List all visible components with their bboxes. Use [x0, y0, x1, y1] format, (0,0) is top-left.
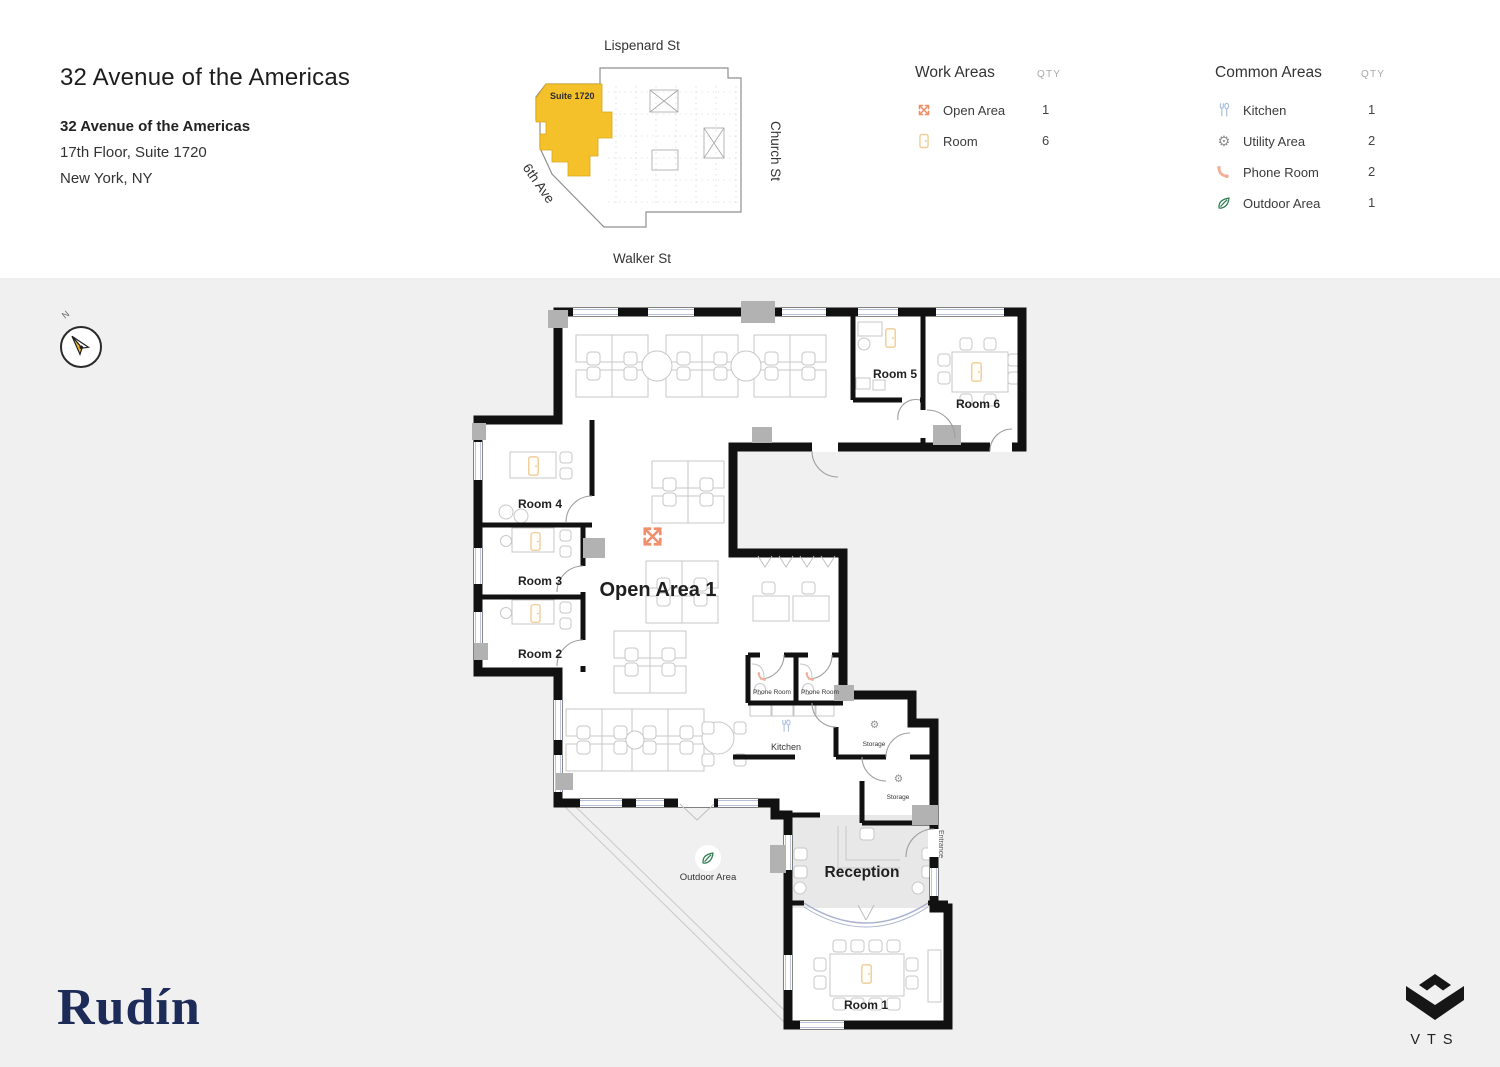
legend-label: Utility Area	[1243, 134, 1305, 149]
phone-room-label: Phone Room	[753, 689, 791, 696]
suite-label: Suite 1720	[550, 91, 595, 101]
storage-label: Storage	[863, 741, 886, 748]
street-bottom: Walker St	[613, 251, 671, 266]
utility-gear-icon	[894, 773, 903, 785]
legend-label: Kitchen	[1243, 103, 1286, 118]
phone-room-label: Phone Room	[801, 689, 839, 696]
legend-qty: 6	[1042, 133, 1049, 148]
terrace-edge	[564, 806, 784, 1022]
open-area-label: Open Area 1	[599, 579, 716, 601]
room2-label: Room 2	[518, 647, 562, 661]
room-marker-icon	[972, 363, 981, 381]
legend-qty: 2	[1368, 164, 1375, 179]
phone-icon	[1215, 163, 1233, 181]
compass-north-label: N	[60, 309, 71, 321]
kitchen-label: Kitchen	[771, 742, 801, 752]
qty-header: QTY	[1037, 69, 1061, 80]
legend-label: Room	[943, 134, 978, 149]
room6-label: Room 6	[956, 397, 1000, 411]
storage-label: Storage	[887, 794, 910, 801]
open-area-icon	[915, 101, 933, 119]
vts-chevron-icon	[1406, 986, 1464, 1020]
room-marker-icon	[862, 965, 871, 983]
legend-qty: 1	[1368, 195, 1375, 210]
room-icon	[915, 132, 933, 150]
room4-label: Room 4	[518, 497, 562, 511]
legend-item-phone-room: Phone Room 2	[1215, 163, 1385, 194]
legend-label: Phone Room	[1243, 165, 1319, 180]
legend-qty: 1	[1368, 102, 1375, 117]
room-marker-icon	[531, 605, 540, 622]
city: New York, NY	[60, 170, 350, 187]
outdoor-area-label: Outdoor Area	[680, 872, 737, 883]
legend-label: Open Area	[943, 103, 1005, 118]
page-title: 32 Avenue of the Americas	[60, 64, 350, 92]
vts-logo: VTS	[1404, 972, 1466, 1056]
floor-suite: 17th Floor, Suite 1720	[60, 144, 350, 161]
room-marker-icon	[886, 329, 895, 347]
vts-chevron-top-icon	[1419, 974, 1451, 991]
room1-label: Room 1	[844, 998, 888, 1012]
building-name: 32 Avenue of the Americas	[60, 118, 350, 135]
common-areas-legend: Common AreasQTY Kitchen 1 Utility Area 2…	[1215, 64, 1385, 225]
leaf-icon	[1215, 194, 1233, 212]
legend-item-room: Room 6	[915, 132, 1061, 163]
utility-gear-icon	[1215, 132, 1233, 150]
legend-item-utility: Utility Area 2	[1215, 132, 1385, 163]
vts-wordmark: VTS	[1410, 1032, 1459, 1048]
room-marker-icon	[529, 457, 538, 475]
common-areas-title: Common Areas	[1215, 64, 1345, 82]
utility-gear-icon	[870, 719, 879, 731]
legend-item-kitchen: Kitchen 1	[1215, 101, 1385, 132]
legend-label: Outdoor Area	[1243, 196, 1320, 211]
compass: N	[60, 309, 101, 367]
key-map: Suite 1720 Lispenard St Walker St Church…	[488, 12, 798, 277]
work-areas-title: Work Areas	[915, 64, 1021, 82]
room3-label: Room 3	[518, 574, 562, 588]
legend-qty: 2	[1368, 133, 1375, 148]
street-right: Church St	[768, 121, 783, 181]
street-top: Lispenard St	[604, 38, 680, 53]
work-areas-legend: Work AreasQTY Open Area 1 Room 6	[915, 64, 1061, 163]
rudin-logo: Rudín	[57, 978, 201, 1037]
room-marker-icon	[531, 533, 540, 550]
kitchen-icon	[1215, 101, 1233, 119]
header: 32 Avenue of the Americas 32 Avenue of t…	[60, 64, 350, 196]
legend-item-open-area: Open Area 1	[915, 101, 1061, 132]
legend-item-outdoor: Outdoor Area 1	[1215, 194, 1385, 225]
legend-qty: 1	[1042, 102, 1049, 117]
reception-label: Reception	[825, 864, 900, 881]
room5-label: Room 5	[873, 367, 917, 381]
entrance-label: Entrance	[937, 830, 944, 858]
qty-header: QTY	[1361, 69, 1385, 80]
